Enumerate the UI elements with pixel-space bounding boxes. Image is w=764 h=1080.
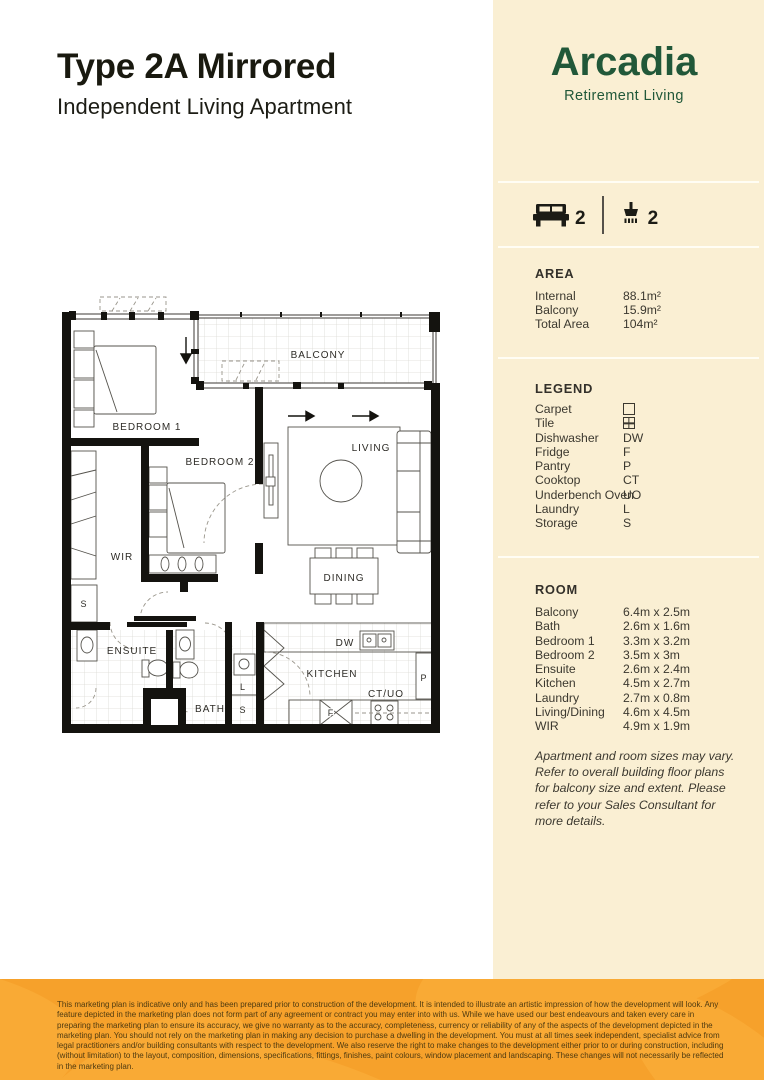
label-living: LIVING xyxy=(352,443,391,454)
room-label: Living/Dining xyxy=(535,705,605,719)
room-value: 6.4m x 2.5m xyxy=(623,605,690,619)
room-row: Ensuite 2.6m x 2.4m xyxy=(535,662,740,676)
legend-label: Underbench Oven xyxy=(535,488,634,502)
area-section: AREA Internal 88.1m² Balcony 15.9m² Tota… xyxy=(535,266,740,331)
area-value: 104m² xyxy=(623,317,658,331)
room-label: Laundry xyxy=(535,691,579,705)
footer-disclaimer: This marketing plan is indicative only a… xyxy=(57,1000,729,1072)
page-subtitle: Independent Living Apartment xyxy=(57,95,477,119)
area-label: Total Area xyxy=(535,317,589,331)
legend-row: Carpet xyxy=(535,402,740,416)
area-row: Total Area 104m² xyxy=(535,317,740,331)
label-bath: BATH xyxy=(195,704,225,715)
room-value: 2.7m x 0.8m xyxy=(623,691,690,705)
bathroom-count: 2 xyxy=(648,208,659,230)
room-section: ROOM Balcony 6.4m x 2.5m Bath 2.6m x 1.6… xyxy=(535,582,740,734)
room-value: 2.6m x 1.6m xyxy=(623,619,690,633)
label-pantry: P xyxy=(420,673,427,683)
legend-row: Dishwasher DW xyxy=(535,431,740,445)
room-row: Living/Dining 4.6m x 4.5m xyxy=(535,705,740,719)
legend-label: Cooktop xyxy=(535,473,580,487)
room-label: Ensuite xyxy=(535,662,576,676)
label-wir: WIR xyxy=(111,552,133,563)
legend-label: Tile xyxy=(535,416,554,430)
page-title: Type 2A Mirrored xyxy=(57,48,477,87)
room-value: 4.6m x 4.5m xyxy=(623,705,690,719)
label-balcony: BALCONY xyxy=(291,350,346,361)
label-laundry: L xyxy=(240,682,246,692)
room-row: Bath 2.6m x 1.6m xyxy=(535,619,740,633)
area-row: Internal 88.1m² xyxy=(535,289,740,303)
divider xyxy=(498,556,759,558)
legend-heading: LEGEND xyxy=(535,381,740,396)
legend-row: Cooktop CT xyxy=(535,473,740,487)
label-kitchen: KITCHEN xyxy=(307,669,358,680)
floorplan-page: { "header": { "title": "Type 2A Mirrored… xyxy=(0,0,764,1080)
room-heading: ROOM xyxy=(535,582,740,597)
sizes-note: Apartment and room sizes may vary. Refer… xyxy=(535,748,735,829)
legend-label: Carpet xyxy=(535,402,572,416)
room-row: WIR 4.9m x 1.9m xyxy=(535,719,740,733)
shower-icon xyxy=(620,202,642,228)
legend-label: Pantry xyxy=(535,459,570,473)
legend-label: Dishwasher xyxy=(535,431,599,445)
label-storage-laundry: S xyxy=(239,705,246,715)
legend-section: LEGEND Carpet Tile Dishwasher DW Fridge … xyxy=(535,381,740,531)
divider xyxy=(498,357,759,359)
label-bedroom2: BEDROOM 2 xyxy=(185,457,254,468)
legend-row: Laundry L xyxy=(535,502,740,516)
room-value: 3.3m x 3.2m xyxy=(623,634,690,648)
legend-label: Storage xyxy=(535,516,578,530)
label-fridge: F xyxy=(328,708,335,718)
legend-code: S xyxy=(623,516,631,530)
area-value: 88.1m² xyxy=(623,289,661,303)
area-label: Balcony xyxy=(535,303,578,317)
area-row: Balcony 15.9m² xyxy=(535,303,740,317)
area-label: Internal xyxy=(535,289,576,303)
legend-code: CT xyxy=(623,473,639,487)
label-ensuite: ENSUITE xyxy=(107,646,157,657)
legend-code: P xyxy=(623,459,631,473)
stats-divider xyxy=(602,196,604,234)
label-dishwasher: DW xyxy=(336,638,355,649)
legend-label: Laundry xyxy=(535,502,579,516)
tile-icon xyxy=(623,416,635,431)
area-heading: AREA xyxy=(535,266,740,281)
room-row: Balcony 6.4m x 2.5m xyxy=(535,605,740,619)
divider xyxy=(498,246,759,248)
title-block: Type 2A Mirrored Independent Living Apar… xyxy=(57,48,477,119)
brand-name: Arcadia xyxy=(521,42,727,82)
legend-code: UO xyxy=(623,488,641,502)
room-label: Balcony xyxy=(535,605,578,619)
legend-row: Storage S xyxy=(535,516,740,530)
room-label: WIR xyxy=(535,719,559,733)
divider xyxy=(498,181,759,183)
floorplan-drawing: BALCONY BEDROOM 1 BEDROOM 2 LIVING DININ… xyxy=(55,292,455,740)
room-row: Kitchen 4.5m x 2.7m xyxy=(535,676,740,690)
carpet-icon xyxy=(623,402,635,417)
legend-code: L xyxy=(623,502,630,516)
room-value: 3.5m x 3m xyxy=(623,648,680,662)
legend-row: Pantry P xyxy=(535,459,740,473)
label-bedroom1: BEDROOM 1 xyxy=(112,422,181,433)
room-row: Laundry 2.7m x 0.8m xyxy=(535,691,740,705)
room-value: 4.5m x 2.7m xyxy=(623,676,690,690)
info-sidebar: Arcadia Retirement Living 2 2 AREA xyxy=(493,0,764,979)
bed-bath-stats: 2 2 xyxy=(533,190,658,240)
footer: This marketing plan is indicative only a… xyxy=(0,979,764,1080)
room-label: Bedroom 1 xyxy=(535,634,595,648)
legend-code: DW xyxy=(623,431,643,445)
legend-label: Fridge xyxy=(535,445,570,459)
room-row: Bedroom 2 3.5m x 3m xyxy=(535,648,740,662)
room-value: 4.9m x 1.9m xyxy=(623,719,690,733)
room-label: Kitchen xyxy=(535,676,576,690)
room-label: Bedroom 2 xyxy=(535,648,595,662)
legend-code: F xyxy=(623,445,630,459)
label-storage-wir: S xyxy=(80,599,87,609)
legend-row: Tile xyxy=(535,416,740,430)
room-row: Bedroom 1 3.3m x 3.2m xyxy=(535,634,740,648)
room-label: Bath xyxy=(535,619,560,633)
legend-row: Underbench Oven UO xyxy=(535,488,740,502)
bed-icon xyxy=(533,203,569,228)
brand-tagline: Retirement Living xyxy=(521,88,727,104)
brand-logo: Arcadia Retirement Living xyxy=(521,42,727,104)
label-cooktop-oven: CT/UO xyxy=(368,689,404,700)
label-dining: DINING xyxy=(324,573,365,584)
area-value: 15.9m² xyxy=(623,303,661,317)
legend-row: Fridge F xyxy=(535,445,740,459)
bedroom-count: 2 xyxy=(575,208,586,230)
room-value: 2.6m x 2.4m xyxy=(623,662,690,676)
